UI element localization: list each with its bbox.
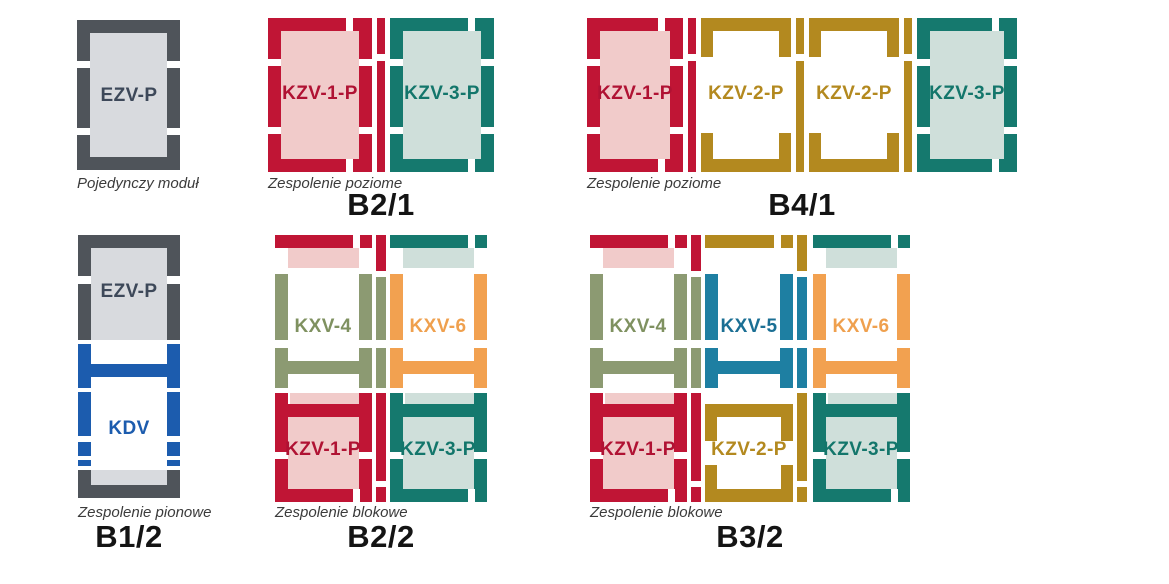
module-label-ezv-p-single: EZV-P (101, 85, 158, 107)
title-b32: B3/2 (716, 519, 783, 555)
module-label-kxv-5-b32: KXV-5 (721, 316, 778, 338)
module-label-kzv-1-p-b32: KZV-1-P (600, 439, 676, 461)
caption-b41: Zespolenie poziome (587, 175, 721, 192)
module-label-kzv-2-p-b-b41: KZV-2-P (816, 83, 892, 105)
module-label-kdv-b12: KDV (108, 418, 149, 440)
module-label-kzv-2-p-a-b41: KZV-2-P (708, 83, 784, 105)
module-label-kxv-6-b32: KXV-6 (833, 316, 890, 338)
module-label-kxv-4-b22: KXV-4 (295, 316, 352, 338)
module-label-kzv-1-p-b22: KZV-1-P (285, 439, 361, 461)
cell-kxv-4-b32 (590, 235, 687, 388)
connector-strip-red-b21 (377, 18, 385, 172)
flashing-combinations-diagram: EZV-P KZV-1-P KZV-3-P KZV-1-P KZV-2-P KZ… (0, 0, 1169, 584)
module-label-kxv-4-b32: KXV-4 (610, 316, 667, 338)
cell-kxv-4-b22 (275, 235, 372, 388)
module-label-kzv-3-p-b32: KZV-3-P (823, 439, 899, 461)
title-b21: B2/1 (347, 187, 414, 223)
title-b12: B1/2 (95, 519, 162, 555)
module-label-kzv-2-p-b32: KZV-2-P (711, 439, 787, 461)
cell-kxv-6-b32 (813, 235, 910, 388)
cell-kxv-6-b22 (390, 235, 487, 388)
module-label-kxv-6-b22: KXV-6 (410, 316, 467, 338)
module-label-kzv-3-p-b41: KZV-3-P (929, 83, 1005, 105)
bottom-bracket-gray-b12 (78, 470, 180, 498)
module-label-kzv-3-p-b21: KZV-3-P (404, 83, 480, 105)
module-label-kzv-1-p-b21: KZV-1-P (282, 83, 358, 105)
title-b41: B4/1 (768, 187, 835, 223)
junction-strips-b22 (376, 235, 386, 502)
cell-kxv-5-b32 (705, 235, 793, 388)
junction-strips-a-b32 (691, 235, 701, 502)
module-label-kzv-1-p-b41: KZV-1-P (597, 83, 673, 105)
caption-b32: Zespolenie blokowe (590, 504, 723, 521)
connector-strip-gold-a-b41 (796, 18, 804, 172)
junction-strips-b-b32 (797, 235, 807, 502)
module-label-kzv-3-p-b22: KZV-3-P (400, 439, 476, 461)
caption-single: Pojedynczy moduł (77, 175, 199, 192)
connector-strip-red-b41 (688, 18, 696, 172)
connector-h-kdv (78, 344, 180, 388)
title-b22: B2/2 (347, 519, 414, 555)
connector-strip-gold-b-b41 (904, 18, 912, 172)
module-label-ezv-p-b12: EZV-P (101, 281, 158, 303)
